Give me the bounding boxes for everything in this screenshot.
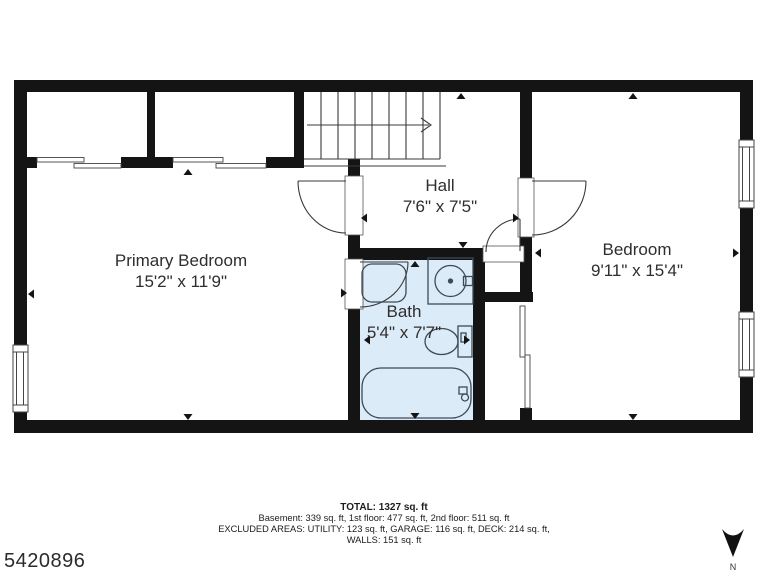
window-right-lower (739, 312, 754, 377)
primary-bedroom-door-arc (298, 181, 346, 233)
wall-mid-3 (348, 307, 360, 433)
wall-right-1 (740, 80, 753, 140)
room-dimensions: 5'4" x 7'7" (367, 322, 441, 343)
wall-closet-stub (520, 408, 532, 433)
wall-left-lower (14, 412, 27, 433)
room-dimensions: 15'2" x 11'9" (115, 271, 247, 292)
bedroom-door-arc (532, 181, 586, 235)
wall-mid-1 (348, 159, 360, 178)
room-dimensions: 9'11" x 15'4" (591, 260, 683, 281)
wall-right-2 (740, 208, 753, 312)
room-label-primary-bedroom: Primary Bedroom 15'2" x 11'9" (115, 250, 247, 292)
room-label-bedroom: Bedroom 9'11" x 15'4" (591, 239, 683, 281)
hall-closet-door-jamb (483, 246, 524, 262)
bedroom-closet-slider-a (520, 306, 525, 357)
primary-bedroom-door-jamb (345, 176, 363, 235)
stairs (304, 92, 446, 166)
wall-closet-bottom-b (121, 157, 173, 168)
compass-label: N (730, 562, 737, 572)
wall-closet-bottom-a (14, 157, 37, 168)
summary-floors: Basement: 339 sq. ft, 1st floor: 477 sq.… (0, 513, 768, 524)
wall-bottom (14, 420, 753, 433)
room-name: Primary Bedroom (115, 250, 247, 271)
bedroom-closet-slider-b (525, 355, 530, 408)
wall-closet-divider (147, 92, 155, 158)
wall-stair-left (294, 80, 304, 165)
closet1-slider-a (37, 158, 84, 163)
closet1-slider-b (74, 164, 121, 169)
room-label-hall: Hall 7'6" x 7'5" (403, 175, 477, 217)
room-label-bath: Bath 5'4" x 7'7" (367, 301, 441, 343)
wall-bath-right (473, 248, 485, 433)
wall-left-upper (14, 80, 27, 345)
wall-bedroom-upper (520, 80, 532, 180)
closet2-slider-a (173, 158, 223, 163)
window-right-upper (739, 140, 754, 208)
summary-walls: WALLS: 151 sq. ft (0, 535, 768, 546)
floor-plan-page: N Primary Bedroom 15'2" x 11'9" Hall 7'6… (0, 0, 768, 576)
room-name: Bedroom (591, 239, 683, 260)
window-left (13, 345, 28, 412)
room-name: Hall (403, 175, 477, 196)
wall-right-3 (740, 377, 753, 433)
bath-door-jamb (345, 259, 363, 309)
closet2-slider-b (216, 164, 266, 169)
wall-bedroom-lower (520, 235, 532, 302)
summary-total: TOTAL: 1327 sq. ft (0, 502, 768, 513)
wall-top (14, 80, 753, 92)
plan-id: 5420896 (4, 550, 85, 573)
area-summary: TOTAL: 1327 sq. ft Basement: 339 sq. ft,… (0, 502, 768, 546)
summary-excluded: EXCLUDED AREAS: UTILITY: 123 sq. ft, GAR… (0, 524, 768, 535)
room-name: Bath (367, 301, 441, 322)
room-dimensions: 7'6" x 7'5" (403, 196, 477, 217)
